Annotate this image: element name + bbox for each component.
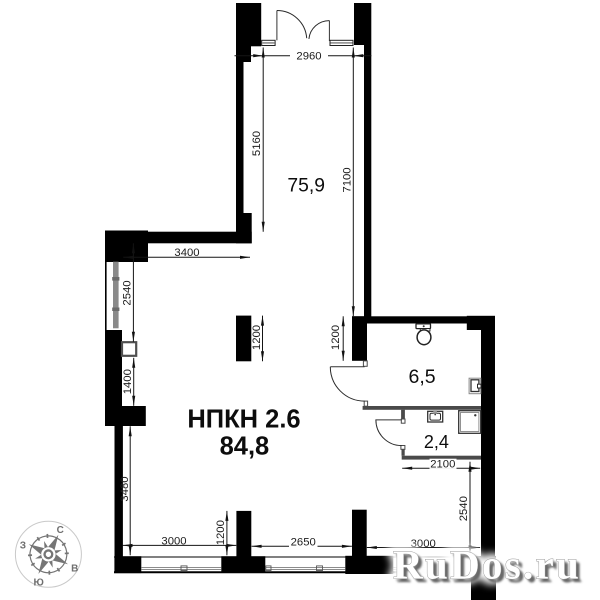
svg-text:7100: 7100 bbox=[342, 167, 354, 192]
svg-text:С: С bbox=[57, 525, 64, 536]
svg-text:2650: 2650 bbox=[291, 536, 316, 548]
svg-text:75,9: 75,9 bbox=[287, 176, 325, 197]
svg-text:В: В bbox=[71, 563, 78, 574]
svg-text:3000: 3000 bbox=[161, 536, 186, 548]
svg-text:НПКН 2.6: НПКН 2.6 bbox=[187, 405, 300, 433]
svg-text:Ю: Ю bbox=[33, 577, 43, 588]
svg-text:6,5: 6,5 bbox=[409, 366, 436, 388]
svg-text:2960: 2960 bbox=[296, 51, 321, 63]
svg-text:RuDos.ru: RuDos.ru bbox=[393, 542, 581, 588]
svg-text:3400: 3400 bbox=[174, 247, 199, 259]
svg-text:2,4: 2,4 bbox=[424, 432, 449, 452]
svg-text:2100: 2100 bbox=[430, 459, 455, 471]
svg-text:1400: 1400 bbox=[122, 369, 134, 394]
svg-text:2540: 2540 bbox=[458, 496, 470, 521]
svg-text:2540: 2540 bbox=[122, 280, 134, 305]
svg-text:5160: 5160 bbox=[251, 131, 263, 156]
svg-text:3480: 3480 bbox=[119, 476, 131, 501]
svg-text:1200: 1200 bbox=[330, 325, 342, 350]
svg-text:1200: 1200 bbox=[251, 325, 263, 350]
svg-text:84,8: 84,8 bbox=[220, 432, 270, 460]
svg-text:З: З bbox=[20, 541, 26, 552]
svg-text:1200: 1200 bbox=[215, 520, 227, 545]
